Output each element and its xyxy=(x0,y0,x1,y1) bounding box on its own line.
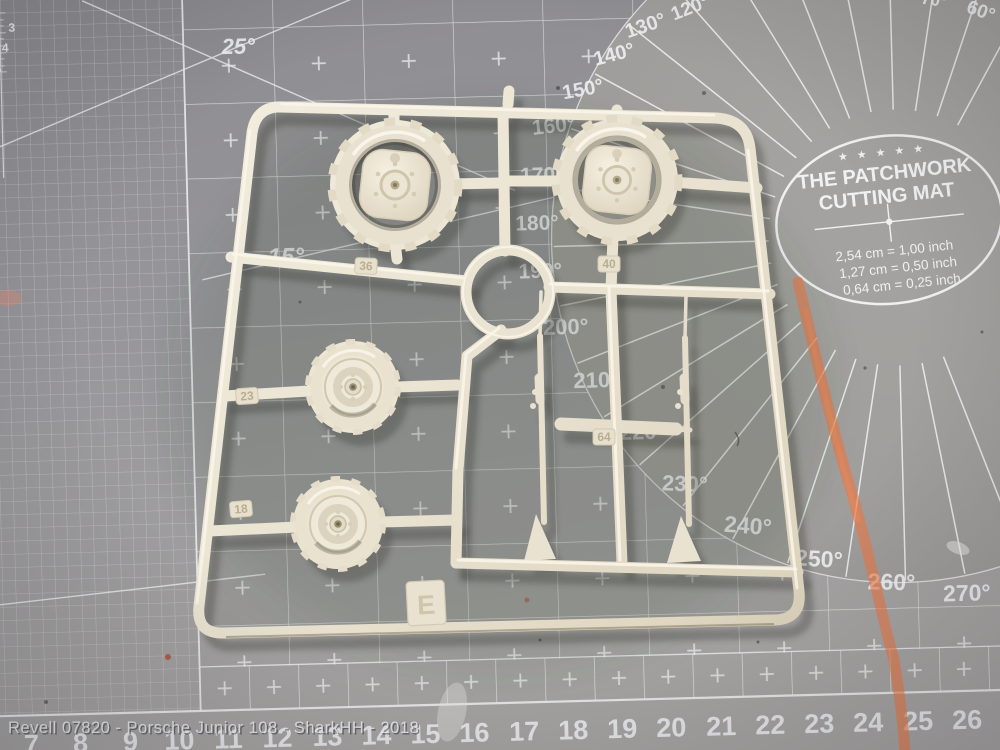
photo-canvas: 25° 15° 3 4 5 xyxy=(0,0,1000,750)
photo-vignette xyxy=(0,0,1000,750)
photo-sprue-on-cutting-mat: 25° 15° 3 4 5 xyxy=(0,0,1000,750)
